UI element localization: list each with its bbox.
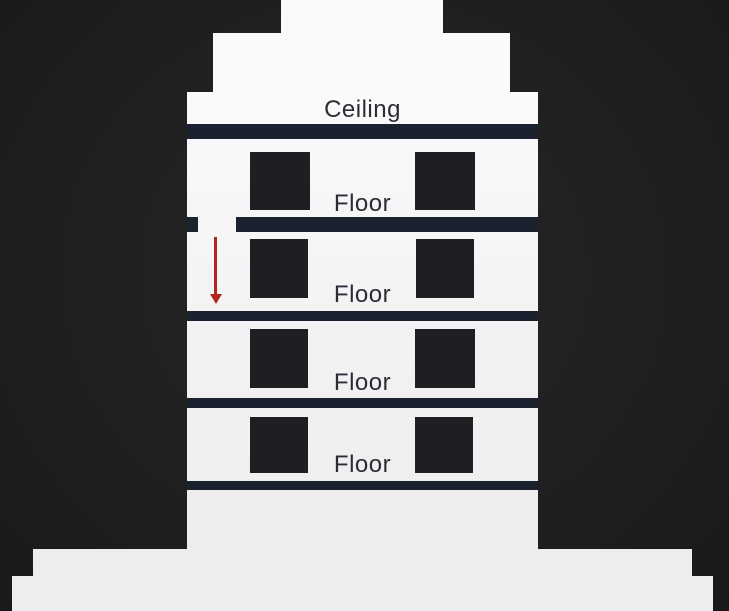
down-arrow-icon — [210, 294, 222, 304]
floor-slab-1 — [236, 217, 538, 232]
floor-slab-4 — [187, 481, 538, 490]
floor-label-3: Floor — [187, 370, 538, 396]
ground-step-lower — [12, 576, 713, 611]
building-cross-section-diagram: Ceiling Floor Floor Floor Floor — [0, 0, 729, 611]
floor-label-4: Floor — [187, 452, 538, 478]
floor-label-1: Floor — [187, 191, 538, 217]
ceiling-slab — [187, 124, 538, 139]
floor-label-2: Floor — [187, 282, 538, 308]
roof-step-middle — [213, 33, 510, 97]
ground-step-upper — [33, 549, 692, 579]
floor-slab-1-stub — [187, 217, 198, 232]
floor-slab-3 — [187, 398, 538, 408]
floor-slab-2 — [187, 311, 538, 321]
ceiling-label: Ceiling — [187, 97, 538, 123]
down-arrow-icon-shaft — [214, 237, 217, 295]
